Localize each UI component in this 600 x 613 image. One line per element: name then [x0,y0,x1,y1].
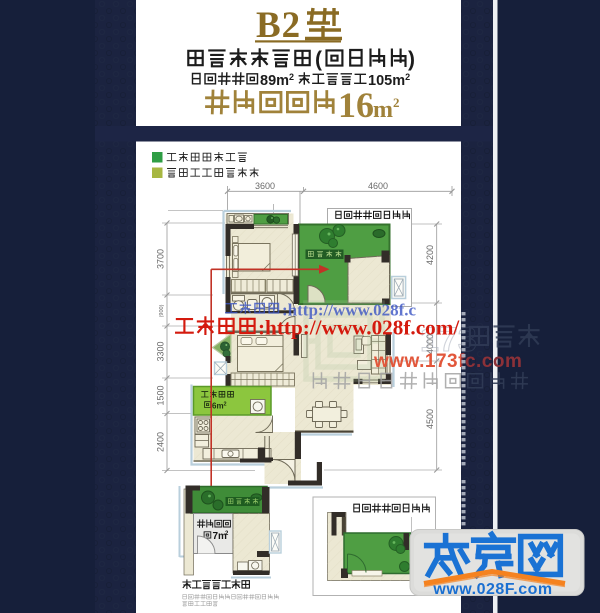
svg-text:16: 16 [338,85,374,125]
svg-text:89m2: 89m2 [260,72,294,89]
svg-text:3300: 3300 [156,341,166,361]
svg-text:4200: 4200 [425,245,435,265]
svg-text:3700: 3700 [156,249,166,269]
svg-text:3600: 3600 [255,181,275,191]
svg-text:105m2: 105m2 [368,72,410,89]
svg-text:1500: 1500 [156,385,166,405]
svg-text:6m: 6m [212,402,224,411]
svg-text:(900): (900) [159,304,165,317]
svg-text:www.028F.com: www.028F.com [432,581,552,598]
svg-text:4500: 4500 [425,409,435,429]
svg-text:2400: 2400 [156,432,166,452]
svg-text:(: ( [315,48,322,71]
svg-text:B2: B2 [256,5,301,46]
svg-text::http://www.028f.com/: :http://www.028f.com/ [258,316,460,340]
svg-text:2: 2 [224,402,227,408]
svg-text:): ) [408,48,415,71]
svg-text:4600: 4600 [368,181,388,191]
